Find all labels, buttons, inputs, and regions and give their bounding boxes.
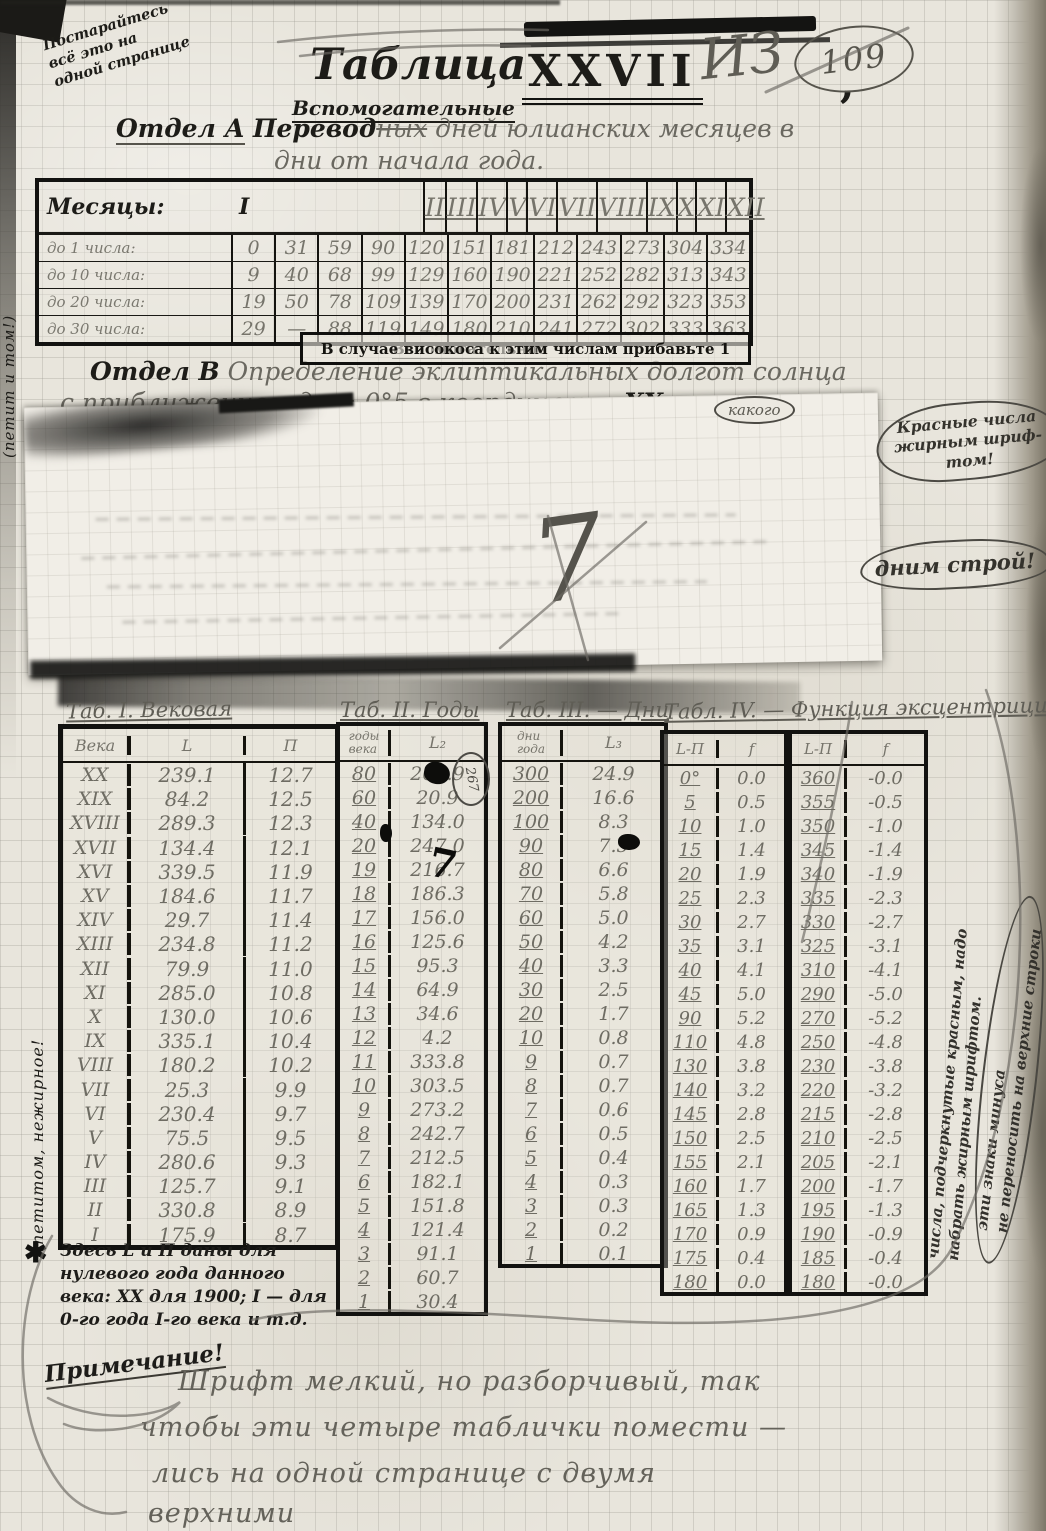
bleed-through-line [81, 540, 771, 560]
table-cell: Века [63, 736, 131, 755]
table-cell: 30 [502, 979, 563, 1001]
table-cell: 7 [340, 1147, 391, 1169]
table-cell: 125.7 [131, 1174, 246, 1198]
table-cell: 200 [490, 289, 533, 315]
table-cell: 2 [340, 1267, 391, 1289]
table-row: 1552.1 [664, 1150, 784, 1174]
table-cell: II [423, 182, 445, 232]
table-cell: 1.3 [719, 1200, 784, 1221]
table-row: 200-1.7 [792, 1174, 924, 1198]
table-cell: 14 [340, 979, 391, 1001]
table-cell: 6.6 [563, 859, 664, 881]
table-cell: 239.1 [131, 763, 246, 787]
table-cell: 165 [664, 1200, 719, 1221]
table-cell: 5.0 [563, 907, 664, 929]
bleed-through-line [96, 513, 736, 520]
table-cell: -0.4 [847, 1248, 924, 1269]
table-cell: 181 [490, 235, 533, 261]
table-cell: 2.3 [719, 888, 784, 909]
table1-centuries: ВекаLП XX239.112.7XIX84.212.5XVIII289.31… [58, 724, 340, 1250]
table-cell: 12 [340, 1027, 391, 1049]
table-cell: 11.9 [246, 860, 335, 884]
table-row: 310-4.1 [792, 958, 924, 982]
table-cell: -1.9 [847, 864, 924, 885]
table-cell: 290 [792, 984, 847, 1005]
table2-title: Таб. II. Годы [340, 698, 480, 722]
table-cell: VI [63, 1103, 131, 1125]
table-cell: 151 [447, 235, 490, 261]
table-cell: 1.0 [719, 816, 784, 837]
table-row: XVII134.412.1 [63, 836, 335, 860]
table-row: 290-5.0 [792, 982, 924, 1006]
table-cell: 0.0 [719, 1272, 784, 1293]
table-cell: 2 [502, 1219, 563, 1241]
correction-bubble: какого [714, 396, 795, 424]
table-row: 340-1.9 [792, 862, 924, 886]
table-row: VII25.39.9 [63, 1077, 335, 1101]
table-cell: 30.4 [391, 1291, 484, 1313]
table-cell: XVII [63, 837, 131, 859]
table-row: V75.59.5 [63, 1126, 335, 1150]
table-row: 124.2 [340, 1026, 484, 1050]
table-cell: до 1 числа: [39, 235, 231, 261]
table-row: 1502.5 [664, 1126, 784, 1150]
table-cell: 64.9 [391, 979, 484, 1001]
table-cell: 11.4 [246, 908, 335, 932]
table-row: 100.8 [502, 1026, 664, 1050]
table-cell: -2.3 [847, 888, 924, 909]
page-right-edge [994, 0, 1046, 1531]
table-row: до 10 числа:9406899129160190221252282313… [39, 261, 749, 288]
table-cell: -1.0 [847, 816, 924, 837]
section-a-heading: Отдел А Переводных дней юлианских месяце… [116, 114, 794, 143]
table-cell: годы века [340, 730, 391, 755]
table-cell: 0 [231, 235, 274, 261]
table-row: 18186.3 [340, 882, 484, 906]
table-cell: 210 [792, 1128, 847, 1149]
table-cell: XX [63, 764, 131, 786]
margin-note-left-vertical-mid: петитом, нежирное! [28, 775, 47, 1245]
table-row: 325-3.1 [792, 934, 924, 958]
table-cell: 0.8 [563, 1027, 664, 1049]
table-row: 391.1 [340, 1242, 484, 1266]
table-cell: 95.3 [391, 955, 484, 977]
table-cell: 355 [792, 792, 847, 813]
table3-body: 30024.920016.61008.3907.5806.6705.8605.0… [502, 762, 664, 1266]
table-cell: III [445, 182, 477, 232]
table-row: IV280.69.3 [63, 1150, 335, 1174]
table-cell: 121.4 [391, 1219, 484, 1241]
section-b-prefix: Отдел В [90, 357, 220, 386]
table-cell: -0.0 [847, 1272, 924, 1293]
table-cell: 1 [340, 1291, 391, 1313]
table-row: 4121.4 [340, 1218, 484, 1242]
table-cell: 2.7 [719, 912, 784, 933]
table-cell: 15 [340, 955, 391, 977]
table-cell: 60 [502, 907, 563, 929]
table-row: 40.3 [502, 1170, 664, 1194]
table-row: 270-5.2 [792, 1006, 924, 1030]
table-cell: IX [646, 182, 676, 232]
table-cell: 25.3 [131, 1078, 246, 1102]
table-cell: 0.5 [563, 1123, 664, 1145]
bottom-handwriting-line2: чтобы эти четыре таблички помести — [140, 1412, 787, 1443]
table-cell: 250 [792, 1032, 847, 1053]
table-cell: 59 [317, 235, 360, 261]
circled-page-number-value: 109 [818, 36, 889, 82]
table-cell: 156.0 [391, 907, 484, 929]
table-row: 210-2.5 [792, 1126, 924, 1150]
table-cell: 170 [447, 289, 490, 315]
table-cell: 323 [663, 289, 706, 315]
table-row: 302.7 [664, 910, 784, 934]
table-cell: 10 [664, 816, 719, 837]
table-cell: 0.1 [563, 1243, 664, 1265]
table-row: 195-1.3 [792, 1198, 924, 1222]
table-row: 20016.6 [502, 786, 664, 810]
table-cell: 170 [664, 1224, 719, 1245]
footnote-text: Здесь L и П даны для нулевого года данно… [60, 1240, 327, 1332]
table-row: 1601.7 [664, 1174, 784, 1198]
table-cell: 340 [792, 864, 847, 885]
table3-days: дни годаL₃ 30024.920016.61008.3907.5806.… [498, 722, 668, 1268]
table-cell: V [506, 182, 526, 232]
table-cell: 180 [792, 1272, 847, 1293]
table-cell: 2.8 [719, 1104, 784, 1125]
table-cell: 84.2 [131, 787, 246, 811]
table-a-month-conversion: Месяцы: IIIIIIIVVVIVIIVIIIIXXXIXII до 1 … [35, 178, 753, 346]
table-row: 7212.5 [340, 1146, 484, 1170]
table-cell: 242.7 [391, 1123, 484, 1145]
table-row: до 20 числа:1950781091391702002312622923… [39, 288, 749, 315]
table-cell: 4 [502, 1171, 563, 1193]
table-cell: 273.2 [391, 1099, 484, 1121]
table4-right-body: 360-0.0355-0.5350-1.0345-1.4340-1.9335-2… [792, 766, 924, 1294]
table-cell: L-П [792, 740, 847, 758]
table-cell: f [719, 740, 784, 758]
table-cell: 334 [706, 235, 749, 261]
table-a-header-row: Месяцы: IIIIIIIVVVIVIIVIIIIXXXIXII [39, 182, 749, 235]
table-cell: L₃ [563, 735, 664, 752]
table-cell: 50 [502, 931, 563, 953]
table-row: XX239.112.7 [63, 763, 335, 787]
table-cell: IV [476, 182, 506, 232]
pencil-scribble-seven: 7 [523, 489, 614, 632]
table-cell: 1 [502, 1243, 563, 1265]
table-row: 17156.0 [340, 906, 484, 930]
table-cell: XI [695, 182, 725, 232]
table-row: 70.6 [502, 1098, 664, 1122]
table-cell: 40 [664, 960, 719, 981]
table-cell: 335 [792, 888, 847, 909]
table-cell: 40 [502, 955, 563, 977]
table-cell: IX [63, 1030, 131, 1052]
table-cell: 230 [792, 1056, 847, 1077]
table-cell: 11.2 [246, 932, 335, 956]
table-row: III125.79.1 [63, 1174, 335, 1198]
table-cell: 134.0 [391, 811, 484, 833]
table-cell: 200 [792, 1176, 847, 1197]
section-a-heading-line2: дни от начала года. [274, 146, 544, 175]
table-cell: 155 [664, 1152, 719, 1173]
table-cell: 1.4 [719, 840, 784, 861]
table-row: 345-1.4 [792, 838, 924, 862]
table-row: 60.5 [502, 1122, 664, 1146]
table-a-month-cells: IIIIIIIVVVIVIIVIIIIXXXIXII [231, 182, 765, 232]
table-cell: VI [526, 182, 556, 232]
table-row: 30.3 [502, 1194, 664, 1218]
table-cell: 30 [664, 912, 719, 933]
table-cell: 160 [664, 1176, 719, 1197]
table-cell: IV [63, 1151, 131, 1173]
table-cell: 10 [502, 1027, 563, 1049]
table-cell: 17 [340, 907, 391, 929]
table-cell: 0.3 [563, 1195, 664, 1217]
table-row: 20.2 [502, 1218, 664, 1242]
table-row: 1303.8 [664, 1054, 784, 1078]
table-cell: 20 [664, 864, 719, 885]
table-cell: 134.4 [131, 836, 246, 860]
table-cell: 313 [663, 262, 706, 288]
table-a-body: до 1 числа:03159901201511812122432733043… [39, 235, 749, 342]
table-cell: 5 [664, 792, 719, 813]
table-row: 10303.5 [340, 1074, 484, 1098]
table-cell: 325 [792, 936, 847, 957]
table-cell: 12.5 [246, 787, 335, 811]
table-cell: 4.8 [719, 1032, 784, 1053]
table-cell: 12.3 [246, 811, 335, 835]
table-cell: 79.9 [131, 957, 246, 981]
table-cell: 310 [792, 960, 847, 981]
table-number: XXVII [522, 46, 703, 105]
table-cell: 13 [340, 1003, 391, 1025]
table-cell: X [676, 182, 696, 232]
table-cell: 3.8 [719, 1056, 784, 1077]
table-row: 6182.1 [340, 1170, 484, 1194]
table-cell: 19 [340, 859, 391, 881]
table-cell: -2.5 [847, 1128, 924, 1149]
table-cell: 0.4 [719, 1248, 784, 1269]
table-cell: XV [63, 885, 131, 907]
table-cell: 3.1 [719, 936, 784, 957]
bleed-through-line [107, 580, 707, 588]
table-cell: 8.3 [563, 811, 664, 833]
table-cell: 25 [664, 888, 719, 909]
table-cell: 1.9 [719, 864, 784, 885]
table-row: 355-0.5 [792, 790, 924, 814]
table-cell: 8.9 [246, 1198, 335, 1222]
table-row: 504.2 [502, 930, 664, 954]
table-cell: L [131, 736, 246, 755]
table-cell: 7 [502, 1099, 563, 1121]
table-row: 151.4 [664, 838, 784, 862]
table-cell: 182.1 [391, 1171, 484, 1193]
table-cell: 350 [792, 816, 847, 837]
table-cell: 2.5 [563, 979, 664, 1001]
table-cell: -0.0 [847, 768, 924, 789]
table-cell: 0.7 [563, 1051, 664, 1073]
table-cell: 78 [317, 289, 360, 315]
table-row: 230-3.8 [792, 1054, 924, 1078]
table-cell: 4.2 [391, 1027, 484, 1049]
table1-header: ВекаLП [63, 729, 335, 763]
table-cell: 212.5 [391, 1147, 484, 1169]
table-row: VIII180.210.2 [63, 1053, 335, 1077]
table-row: 205-2.1 [792, 1150, 924, 1174]
table-cell: 7.5 [563, 835, 664, 857]
table-row: 5151.8 [340, 1194, 484, 1218]
table-row: 215-2.8 [792, 1102, 924, 1126]
table-row: 50.4 [502, 1146, 664, 1170]
table-cell: XIII [63, 933, 131, 955]
table-row: 1334.6 [340, 1002, 484, 1026]
table2-years: годы векаL₂ 80267.96020.940134.020247.01… [336, 722, 488, 1316]
table-row: 40134.0 [340, 810, 484, 834]
table-cell: 80 [502, 859, 563, 881]
table-row: 1595.3 [340, 954, 484, 978]
table-cell: 330 [792, 912, 847, 933]
table-row: 1008.3 [502, 810, 664, 834]
table-cell: X [63, 1006, 131, 1028]
table-cell: 3.2 [719, 1080, 784, 1101]
table-cell: 9 [502, 1051, 563, 1073]
section-a-rest: дней юлианских месяцев в [435, 114, 794, 143]
table-cell: 16 [340, 931, 391, 953]
table-cell: 90 [361, 235, 404, 261]
ink-blot [380, 824, 392, 842]
table-row: 605.0 [502, 906, 664, 930]
table-row: 353.1 [664, 934, 784, 958]
table-cell: 345 [792, 840, 847, 861]
table-cell: 303.5 [391, 1075, 484, 1097]
table-cell: 9.1 [246, 1174, 335, 1198]
table-cell: 0.6 [563, 1099, 664, 1121]
table-row: 907.5 [502, 834, 664, 858]
table-row: 1750.4 [664, 1246, 784, 1270]
table-cell: VII [63, 1079, 131, 1101]
table-cell: -5.2 [847, 1008, 924, 1029]
table-cell: 1.7 [563, 1003, 664, 1025]
table-cell: 9.9 [246, 1078, 335, 1102]
margin-note-left-vertical-top: (петит и том!) [0, 158, 18, 458]
table-cell: 184.6 [131, 884, 246, 908]
table-row: 1452.8 [664, 1102, 784, 1126]
table-cell: 8 [340, 1123, 391, 1145]
table-cell: 6 [340, 1171, 391, 1193]
table-row: 10.1 [502, 1242, 664, 1266]
table-row: 404.1 [664, 958, 784, 982]
table-cell: 35 [664, 936, 719, 957]
table-row: XV184.611.7 [63, 884, 335, 908]
table-cell: -3.2 [847, 1080, 924, 1101]
table-row: 330-2.7 [792, 910, 924, 934]
table-cell: 3.3 [563, 955, 664, 977]
table-cell: 282 [620, 262, 663, 288]
table-row: 16125.6 [340, 930, 484, 954]
table-cell: 285.0 [131, 981, 246, 1005]
table-a-corner-label: Месяцы: [39, 182, 231, 232]
table-cell: V [63, 1127, 131, 1149]
table-cell: 335.1 [131, 1029, 246, 1053]
table-row: 455.0 [664, 982, 784, 1006]
table-cell: 10.4 [246, 1029, 335, 1053]
table-cell: 0.2 [563, 1219, 664, 1241]
table4-left-header: L-Пf [664, 734, 784, 766]
table-cell: 231 [533, 289, 576, 315]
table-cell: XVIII [63, 812, 131, 834]
table-cell: -2.7 [847, 912, 924, 933]
table-cell: 151.8 [391, 1195, 484, 1217]
table-cell: 12.7 [246, 763, 335, 787]
table-cell: f [847, 740, 924, 758]
table-cell: 0.4 [563, 1147, 664, 1169]
table-cell: 10 [340, 1075, 391, 1097]
table-cell: 80 [340, 763, 391, 785]
table-cell: -4.1 [847, 960, 924, 981]
table4-left-body: 0°0.050.5101.0151.4201.9252.3302.7353.14… [664, 766, 784, 1294]
table-cell: 243 [576, 235, 619, 261]
table-cell: 15 [664, 840, 719, 861]
table-row: 250-4.8 [792, 1030, 924, 1054]
table-cell: 11.0 [246, 957, 335, 981]
table4-left: L-Пf 0°0.050.5101.0151.4201.9252.3302.73… [660, 730, 788, 1296]
table-cell: 289.3 [131, 811, 246, 835]
table-cell: -4.8 [847, 1032, 924, 1053]
table-row: до 1 числа:03159901201511812122432733043… [39, 235, 749, 261]
table-cell: 2.1 [719, 1152, 784, 1173]
table-cell: 300 [502, 763, 563, 785]
table-row: XI285.010.8 [63, 981, 335, 1005]
table-row: XIX84.212.5 [63, 787, 335, 811]
table-cell: 220 [792, 1080, 847, 1101]
table-cell: 34.6 [391, 1003, 484, 1025]
table-cell: 140 [664, 1080, 719, 1101]
table-cell: 2.5 [719, 1128, 784, 1149]
table4-right-header: L-Пf [792, 734, 924, 766]
table-cell: 343 [706, 262, 749, 288]
table-row: 905.2 [664, 1006, 784, 1030]
table-cell: 50 [274, 289, 317, 315]
table-row: 1700.9 [664, 1222, 784, 1246]
table-cell: 40 [274, 262, 317, 288]
table-row: 220-3.2 [792, 1078, 924, 1102]
table-cell: 221 [533, 262, 576, 288]
table-row: 1800.0 [664, 1270, 784, 1294]
table-row: 190-0.9 [792, 1222, 924, 1246]
table-row: II330.88.9 [63, 1198, 335, 1222]
table-row: 1104.8 [664, 1030, 784, 1054]
table-cell: 200 [502, 787, 563, 809]
table-cell: -2.8 [847, 1104, 924, 1125]
table-cell: 90 [664, 1008, 719, 1029]
table-row: 201.9 [664, 862, 784, 886]
table-cell: L-П [664, 740, 719, 758]
table-row: IX335.110.4 [63, 1029, 335, 1053]
table-row: 1464.9 [340, 978, 484, 1002]
table-cell: 8 [502, 1075, 563, 1097]
table-cell: XII [725, 182, 765, 232]
table-cell: 9.7 [246, 1102, 335, 1126]
table-cell: III [63, 1175, 131, 1197]
table-row: 260.7 [340, 1266, 484, 1290]
table-row: 0°0.0 [664, 766, 784, 790]
table-cell: 4.1 [719, 960, 784, 981]
table-cell: 139 [404, 289, 447, 315]
table-cell: 19 [231, 289, 274, 315]
table-row: 90.7 [502, 1050, 664, 1074]
circled-correction-267: 267 [452, 752, 490, 806]
table-cell: 99 [361, 262, 404, 288]
